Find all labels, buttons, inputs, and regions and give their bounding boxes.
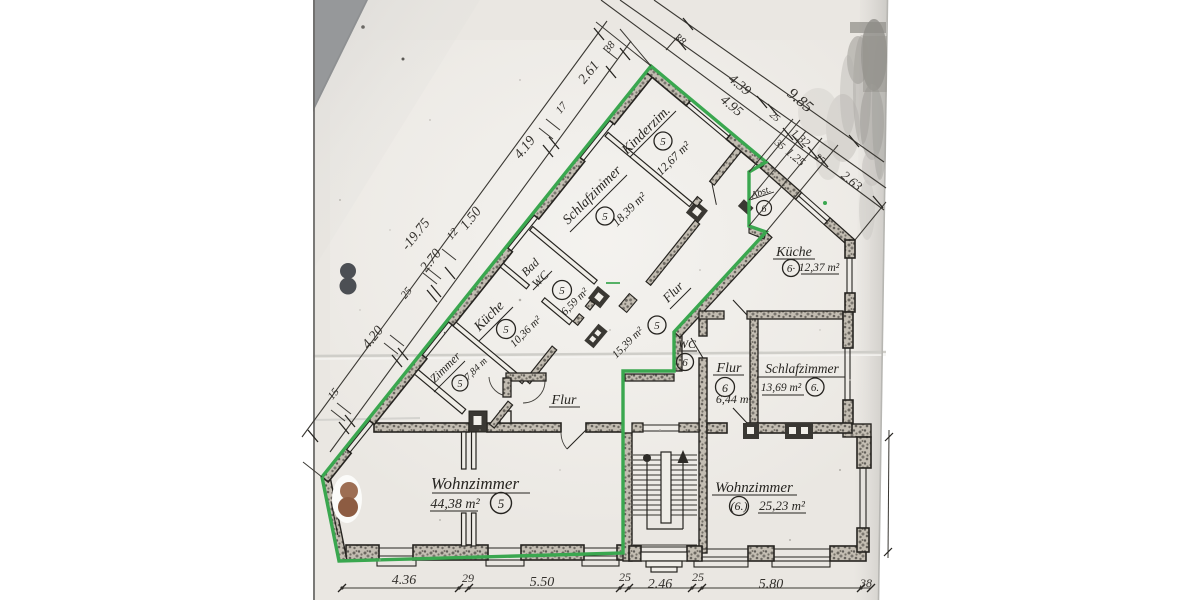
svg-text:5: 5	[660, 136, 666, 148]
svg-text:5.80: 5.80	[759, 577, 784, 592]
svg-text:29: 29	[462, 571, 474, 585]
svg-text:5: 5	[458, 379, 463, 390]
svg-text:5: 5	[498, 496, 505, 511]
svg-text:25: 25	[692, 570, 704, 584]
svg-text:5: 5	[602, 211, 608, 223]
svg-text:6.: 6.	[811, 382, 819, 394]
svg-text:Wohnzimmer: Wohnzimmer	[715, 480, 793, 496]
svg-text:13,69 m²: 13,69 m²	[761, 382, 802, 394]
svg-text:6·: 6·	[787, 263, 796, 275]
svg-text:6: 6	[682, 357, 688, 369]
svg-text:25,23 m²: 25,23 m²	[759, 498, 806, 513]
svg-text:25: 25	[619, 570, 631, 584]
svg-text:5: 5	[559, 285, 565, 297]
svg-text:WC: WC	[678, 337, 697, 351]
svg-text:Küche: Küche	[775, 245, 812, 260]
svg-text:5: 5	[503, 324, 509, 336]
svg-text:12,37 m²: 12,37 m²	[799, 262, 840, 274]
svg-text:5.50: 5.50	[530, 575, 555, 590]
svg-text:Schlafzimmer: Schlafzimmer	[765, 361, 839, 376]
svg-text:6,44 m²: 6,44 m²	[716, 392, 753, 406]
svg-text:5: 5	[654, 320, 660, 332]
svg-text:38: 38	[859, 576, 872, 590]
svg-text:Flur: Flur	[716, 361, 742, 376]
svg-text:44,38 m²: 44,38 m²	[430, 497, 480, 512]
svg-text:2.46: 2.46	[648, 577, 673, 592]
svg-text:4.36: 4.36	[392, 573, 417, 588]
svg-text:Wohnzimmer: Wohnzimmer	[431, 474, 520, 493]
svg-text:(6.): (6.)	[731, 499, 748, 513]
svg-text:Flur: Flur	[551, 393, 577, 408]
